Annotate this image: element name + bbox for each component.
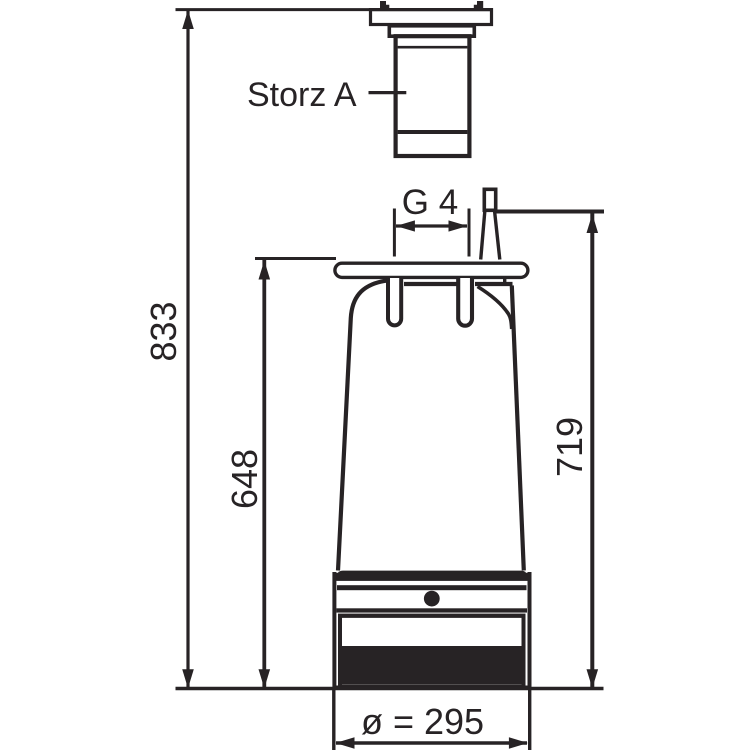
svg-text:Storz A: Storz A <box>247 76 357 114</box>
svg-text:648: 648 <box>224 449 265 509</box>
svg-text:719: 719 <box>549 417 590 477</box>
svg-text:ø = 295: ø = 295 <box>361 701 484 742</box>
svg-text:833: 833 <box>143 301 184 361</box>
svg-text:G 4: G 4 <box>402 183 458 222</box>
